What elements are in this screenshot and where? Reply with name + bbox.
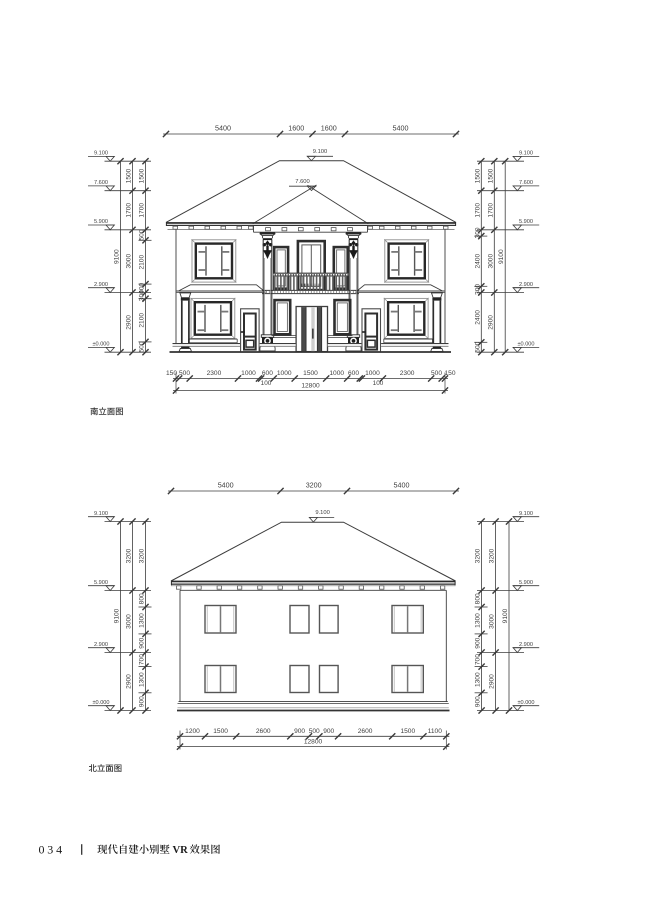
svg-text:9.100: 9.100 <box>519 151 533 157</box>
svg-text:1500: 1500 <box>139 168 146 183</box>
svg-text:1500: 1500 <box>303 370 318 377</box>
svg-text:3200: 3200 <box>126 548 133 563</box>
svg-text:1000: 1000 <box>277 370 292 377</box>
svg-text:1700: 1700 <box>474 203 481 218</box>
svg-text:9.100: 9.100 <box>94 511 108 517</box>
svg-text:100: 100 <box>373 380 384 387</box>
svg-text:9100: 9100 <box>502 608 509 623</box>
svg-text:9.100: 9.100 <box>313 149 328 155</box>
svg-text:2900: 2900 <box>126 315 133 330</box>
svg-text:2600: 2600 <box>256 728 271 735</box>
svg-text:7.600: 7.600 <box>519 180 533 186</box>
svg-text:7.600: 7.600 <box>295 179 310 185</box>
svg-text:5400: 5400 <box>218 481 234 490</box>
svg-text:9.100: 9.100 <box>519 511 533 517</box>
svg-text:2400: 2400 <box>474 254 481 269</box>
svg-text:7.600: 7.600 <box>94 180 108 186</box>
svg-text:500: 500 <box>431 370 442 377</box>
svg-text:2900: 2900 <box>489 674 496 689</box>
svg-text:5.900: 5.900 <box>94 219 108 225</box>
svg-text:2400: 2400 <box>474 310 481 325</box>
svg-text:2100: 2100 <box>139 255 146 270</box>
svg-text:700: 700 <box>139 654 146 665</box>
svg-text:500: 500 <box>179 370 190 377</box>
svg-text:1600: 1600 <box>321 124 337 133</box>
svg-text:9100: 9100 <box>114 249 121 264</box>
svg-text:2.900: 2.900 <box>94 282 108 288</box>
svg-text:2300: 2300 <box>207 370 222 377</box>
svg-text:9.100: 9.100 <box>94 151 108 157</box>
svg-text:1300: 1300 <box>139 672 146 687</box>
svg-text:1500: 1500 <box>400 728 415 735</box>
svg-text:5400: 5400 <box>393 124 409 133</box>
svg-text:100: 100 <box>261 380 272 387</box>
svg-text:1500: 1500 <box>126 168 133 183</box>
svg-text:500: 500 <box>309 728 320 735</box>
svg-text:9.100: 9.100 <box>315 510 330 516</box>
svg-text:2900: 2900 <box>487 315 494 330</box>
svg-text:1000: 1000 <box>329 370 344 377</box>
svg-text:900: 900 <box>139 637 146 648</box>
svg-text:150: 150 <box>166 370 177 377</box>
svg-text:3200: 3200 <box>475 548 482 563</box>
svg-text:700: 700 <box>475 654 482 665</box>
svg-text:±0.000: ±0.000 <box>92 342 109 348</box>
svg-text:2900: 2900 <box>126 674 133 689</box>
svg-text:±0.000: ±0.000 <box>92 700 109 706</box>
svg-text:1300: 1300 <box>475 672 482 687</box>
svg-text:1300: 1300 <box>475 613 482 628</box>
svg-text:1600: 1600 <box>288 124 304 133</box>
svg-text:3000: 3000 <box>489 614 496 629</box>
svg-text:1700: 1700 <box>487 203 494 218</box>
svg-text:1300: 1300 <box>139 613 146 628</box>
svg-text:900: 900 <box>323 728 334 735</box>
svg-text:VR: VR <box>173 845 189 856</box>
svg-text:2600: 2600 <box>358 728 373 735</box>
svg-text:800: 800 <box>139 593 146 604</box>
svg-text:1000: 1000 <box>241 370 256 377</box>
svg-text:2300: 2300 <box>400 370 415 377</box>
svg-text:1500: 1500 <box>213 728 228 735</box>
svg-text:2100: 2100 <box>139 313 146 328</box>
svg-text:1500: 1500 <box>487 168 494 183</box>
svg-text:034: 034 <box>39 843 65 857</box>
svg-text:±0.000: ±0.000 <box>517 700 534 706</box>
svg-text:3200: 3200 <box>489 548 496 563</box>
svg-text:3000: 3000 <box>487 254 494 269</box>
svg-text:2.900: 2.900 <box>519 642 533 648</box>
svg-text:1700: 1700 <box>139 203 146 218</box>
svg-text:1200: 1200 <box>185 728 200 735</box>
svg-text:600: 600 <box>262 370 273 377</box>
svg-text:900: 900 <box>475 637 482 648</box>
svg-text:1000: 1000 <box>365 370 380 377</box>
svg-text:5.900: 5.900 <box>519 580 533 586</box>
svg-text:2.900: 2.900 <box>94 642 108 648</box>
svg-text:1500: 1500 <box>474 168 481 183</box>
svg-text:3000: 3000 <box>126 254 133 269</box>
svg-text:900: 900 <box>475 696 482 707</box>
svg-text:2.900: 2.900 <box>519 282 533 288</box>
svg-text:600: 600 <box>348 370 359 377</box>
svg-text:800: 800 <box>475 593 482 604</box>
svg-text:900: 900 <box>139 696 146 707</box>
svg-text:12800: 12800 <box>301 383 320 390</box>
svg-text:9100: 9100 <box>114 608 121 623</box>
svg-text:5400: 5400 <box>394 481 410 490</box>
svg-text:3200: 3200 <box>139 548 146 563</box>
svg-text:1100: 1100 <box>428 728 443 735</box>
svg-text:5.900: 5.900 <box>519 219 533 225</box>
svg-text:5400: 5400 <box>215 124 231 133</box>
svg-text:5.900: 5.900 <box>94 580 108 586</box>
svg-text:1700: 1700 <box>126 203 133 218</box>
svg-text:±0.000: ±0.000 <box>517 342 534 348</box>
svg-text:3200: 3200 <box>306 481 322 490</box>
svg-text:900: 900 <box>294 728 305 735</box>
svg-text:3000: 3000 <box>126 614 133 629</box>
svg-text:9100: 9100 <box>498 249 505 264</box>
svg-text:12800: 12800 <box>304 739 323 746</box>
svg-text:150: 150 <box>444 370 455 377</box>
